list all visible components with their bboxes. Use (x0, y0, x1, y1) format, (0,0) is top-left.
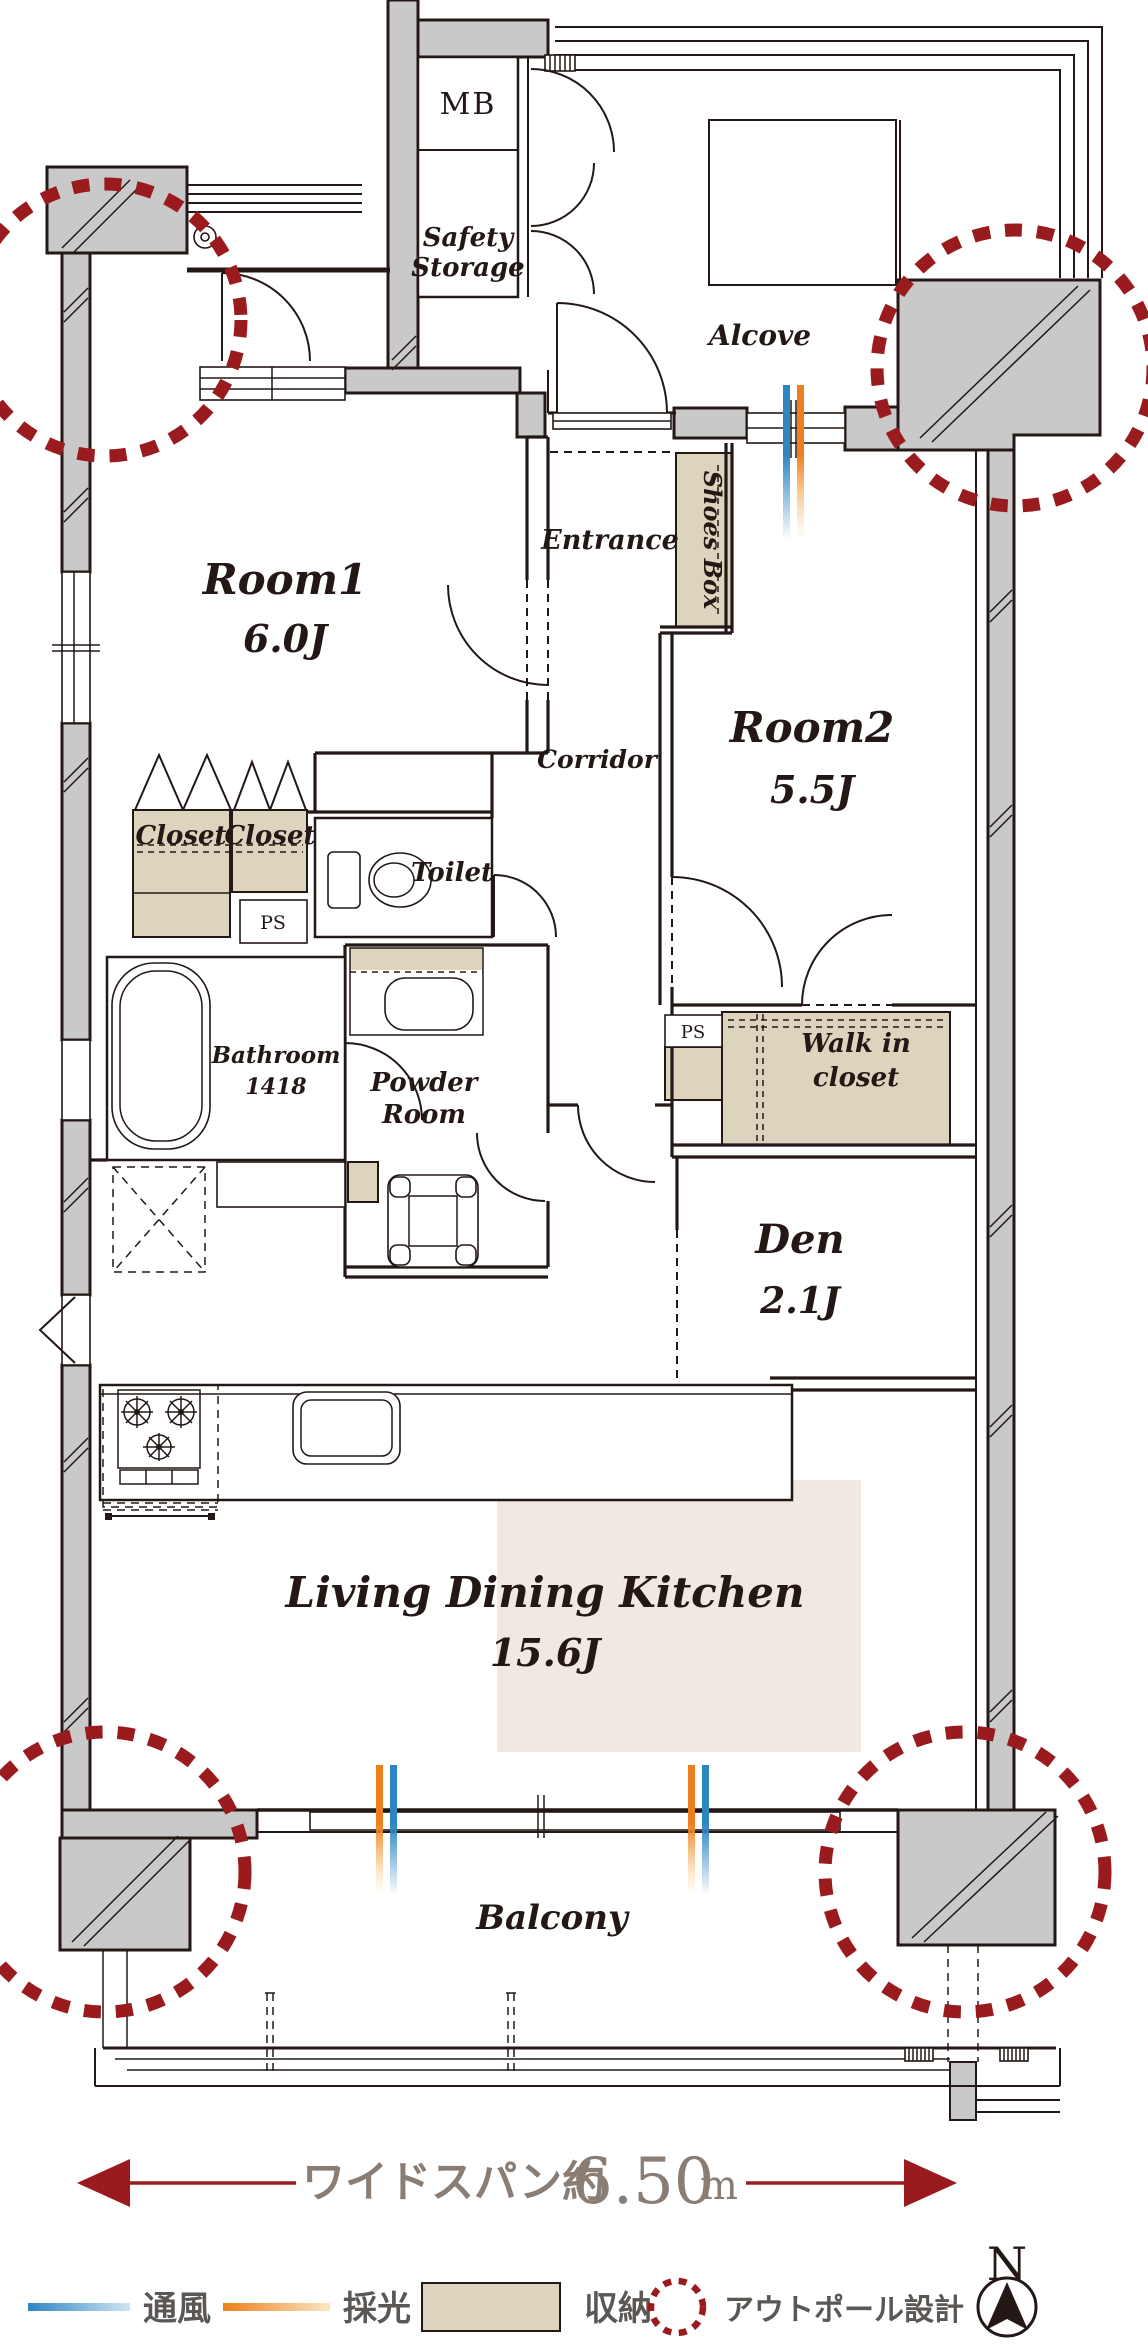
wall-entry-spine (388, 0, 418, 372)
wall-right (988, 450, 1014, 1810)
label-powder-1: Powder (370, 1068, 480, 1098)
wall-room1-top (345, 368, 520, 393)
wic-door (802, 915, 892, 1005)
vanity-top-area (350, 948, 483, 970)
legend-daylight-line-icon (223, 2303, 330, 2311)
label-powder-2: Room (381, 1100, 466, 1130)
label-room2-size: 5.5J (770, 767, 857, 812)
compass: N (978, 2237, 1036, 2336)
label-ldk: Living Dining Kitchen (285, 1568, 805, 1617)
bathroom-window (62, 1040, 90, 1120)
pillar-top-right (898, 280, 1100, 450)
label-entrance: Entrance (540, 525, 679, 556)
daylight-line-top-icon (797, 385, 804, 540)
wall-left-3 (62, 1120, 90, 1295)
label-wic-1: Walk in (801, 1029, 911, 1059)
label-den-size: 2.1J (759, 1280, 842, 1322)
legend-daylight-label: 採光 (343, 2289, 411, 2329)
room1-right-wall (527, 437, 548, 753)
vent-line-balcony-right-icon (702, 1765, 709, 1895)
refrigerator-space (113, 1167, 205, 1272)
label-ps-lower: PS (681, 1022, 705, 1043)
daylight-line-balcony-right-icon (688, 1765, 695, 1895)
den-bottom-wall (770, 1378, 976, 1390)
balcony-drain-pillar (950, 2062, 976, 2120)
porch-gate-door (222, 273, 310, 361)
label-shoes-box: Shoes Box (698, 471, 727, 610)
dimension-annotation: ワイドスパン約 6.50 m (77, 2145, 957, 2219)
label-mb: MB (440, 87, 497, 122)
dimension-arrow-right-icon (904, 2159, 957, 2207)
vent-grate-icon (545, 55, 575, 71)
ldk-window (310, 1812, 840, 1830)
railing-top-right (555, 27, 1102, 278)
label-safety-storage-1: Safety (423, 223, 515, 253)
kitchen-back-counter (217, 1162, 345, 1207)
mb-door (531, 69, 614, 152)
legend-storage-label: 収納 (584, 2289, 652, 2329)
dimension-label-prefix: ワイドスパン約 (302, 2158, 605, 2208)
room1-bottom-walls (307, 753, 548, 818)
powder-door (477, 1133, 545, 1201)
pillar-bottom-left (60, 1838, 190, 1950)
label-alcove: Alcove (706, 319, 811, 352)
label-closet-right: Closet (224, 821, 315, 851)
label-safety-storage-2: Storage (411, 253, 524, 283)
label-wic-2: closet (813, 1063, 899, 1093)
entrance-door (557, 303, 667, 413)
label-bathroom: Bathroom (211, 1042, 341, 1069)
legend-outpole-circle-icon (651, 2281, 703, 2333)
floorplan-canvas: MB Safety Storage Alcove Entrance Shoes … (0, 0, 1148, 2344)
railing-top-left (187, 185, 362, 212)
kitchen-counter (100, 1385, 792, 1520)
wic-den-wall (672, 1145, 976, 1157)
legend: 通風 採光 収納 アウトポール設計 (28, 2281, 964, 2333)
label-room1-size: 6.0J (243, 616, 330, 661)
label-corridor: Corridor (537, 745, 659, 774)
wall-door-right (674, 408, 747, 438)
label-balcony: Balcony (475, 1898, 630, 1938)
legend-outpole-label: アウトポール設計 (724, 2293, 964, 2328)
label-toilet: Toilet (411, 858, 493, 888)
daylight-line-balcony-left-icon (376, 1765, 383, 1895)
label-den: Den (754, 1216, 844, 1263)
dimension-label-unit: m (700, 2163, 738, 2209)
label-ldk-size: 15.6J (490, 1630, 604, 1675)
dimension-arrow-left-icon (77, 2159, 130, 2207)
vent-line-balcony-left-icon (390, 1765, 397, 1895)
wall-bottom-left (62, 1810, 257, 1838)
kitchen-sink-icon (293, 1392, 400, 1464)
legend-vent-line-icon (28, 2303, 130, 2311)
wall-entry-jog (517, 393, 545, 437)
balcony-dividers (267, 1945, 978, 2072)
label-room2: Room2 (729, 703, 895, 752)
alcove-void-frame (709, 120, 896, 285)
safety-storage-doors (531, 163, 594, 294)
vent-line-top-icon (783, 385, 790, 540)
room1-door (448, 585, 548, 685)
bathtub-icon (112, 963, 210, 1149)
label-ps-upper: PS (260, 912, 286, 934)
room1-west-window (62, 572, 90, 723)
legend-vent-label: 通風 (143, 2289, 211, 2329)
powder-shelf-area (348, 1162, 378, 1202)
legend-storage-box-icon (422, 2283, 560, 2331)
label-room1: Room1 (202, 555, 368, 604)
toilet-door (494, 875, 556, 937)
label-closet-left: Closet (135, 821, 226, 851)
closet-right-fold-door (234, 762, 306, 810)
closet-left-fold-door (135, 755, 231, 810)
washing-machine-pan-icon (388, 1175, 478, 1267)
dimension-label-value: 6.50 (572, 2145, 715, 2219)
wall-mb-cap (418, 20, 548, 57)
balcony-vent-strips (905, 2048, 1028, 2061)
room2-door (672, 877, 782, 987)
corridor-ldk-door (578, 1105, 655, 1182)
floorplan-page: MB Safety Storage Alcove Entrance Shoes … (0, 0, 1148, 2344)
label-bathroom-size: 1418 (245, 1074, 306, 1100)
